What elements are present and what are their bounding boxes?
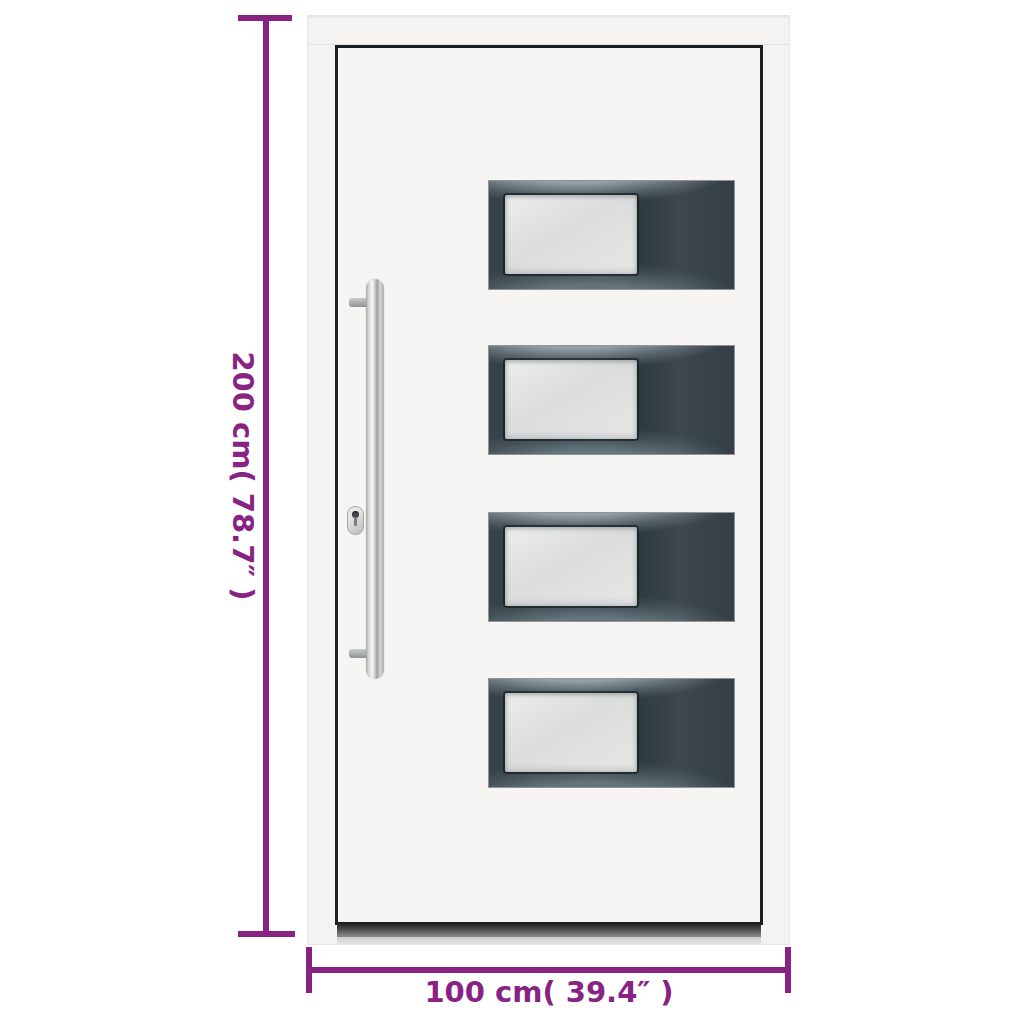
width-dimension-label: 100 cm( 39.4″ ) bbox=[424, 975, 673, 1009]
lock-cylinder bbox=[347, 506, 364, 535]
height-dimension-line bbox=[263, 15, 269, 937]
door-threshold bbox=[337, 923, 761, 937]
door-panel bbox=[489, 346, 734, 454]
height-dimension-cap-bottom bbox=[238, 931, 295, 937]
door-panel bbox=[489, 513, 734, 621]
glass-pane bbox=[505, 360, 637, 439]
door-threshold-base bbox=[337, 937, 761, 945]
door-frame bbox=[307, 15, 790, 945]
width-dimension-cap-right bbox=[785, 947, 791, 993]
keyhole-slot bbox=[354, 517, 357, 526]
door-panel bbox=[489, 181, 734, 289]
height-dimension-label: 200 cm( 78.7″ ) bbox=[226, 351, 260, 600]
width-dimension-line bbox=[307, 967, 791, 973]
glass-pane bbox=[505, 693, 637, 772]
door-handle bbox=[366, 279, 384, 679]
glass-pane bbox=[505, 527, 637, 606]
door-panel bbox=[489, 679, 734, 787]
product-image: 200 cm( 78.7″ ) 100 cm( 39.4″ ) bbox=[0, 0, 1024, 1024]
glass-pane bbox=[505, 195, 637, 274]
